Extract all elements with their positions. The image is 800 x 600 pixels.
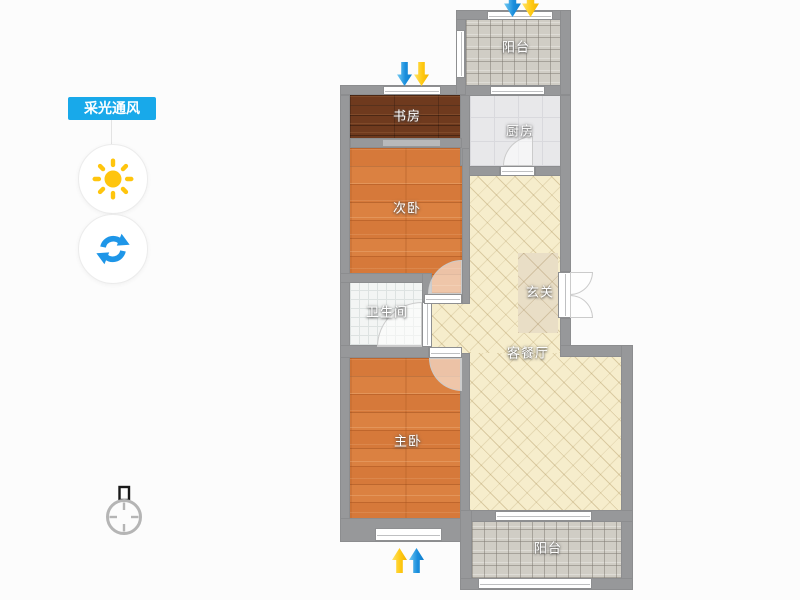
door-swing-entrance-lower	[570, 295, 593, 318]
window	[495, 511, 592, 521]
door-frame-kitchen	[500, 166, 535, 176]
room-label-entry: 玄关	[526, 282, 554, 301]
window	[456, 30, 465, 78]
room-label-study: 书房	[393, 106, 421, 125]
wall	[621, 345, 633, 590]
window	[487, 11, 553, 20]
floor-living-corridor	[432, 304, 470, 353]
room-label-bedroom-second: 次卧	[393, 198, 421, 217]
floor-plan-canvas[interactable]: 阳台 书房 厨房 次卧 玄关 卫生间 客餐厅 主卧 阳台	[0, 0, 800, 600]
wall	[340, 95, 350, 542]
window	[478, 578, 592, 589]
window	[375, 528, 442, 541]
window	[383, 86, 441, 95]
room-label-bedroom-master: 主卧	[394, 431, 422, 450]
room-label-balcony-bottom: 阳台	[534, 538, 562, 557]
arrow-down-yellow-icon	[414, 62, 429, 86]
wall	[560, 10, 571, 95]
arrow-down-blue-icon	[397, 62, 412, 86]
door-swing-entrance-upper	[570, 272, 593, 295]
room-label-balcony-top: 阳台	[502, 37, 530, 56]
window	[490, 86, 545, 95]
wall	[462, 148, 470, 304]
door-frame-bathroom	[422, 302, 432, 347]
room-label-bathroom: 卫生间	[366, 302, 408, 321]
floorplan-viewer: 采光通风	[0, 0, 800, 600]
room-label-kitchen: 厨房	[506, 121, 534, 140]
wall	[560, 95, 571, 272]
door-frame-bedroom-second	[424, 294, 462, 304]
arrow-up-blue-icon	[409, 548, 424, 573]
wall-closet-strip	[383, 140, 440, 146]
door-frame-bedroom-master	[429, 347, 462, 358]
arrow-up-yellow-icon	[392, 548, 407, 573]
wall	[340, 273, 432, 283]
room-label-living-dining: 客餐厅	[507, 343, 549, 362]
floor-living-lower	[470, 353, 621, 510]
